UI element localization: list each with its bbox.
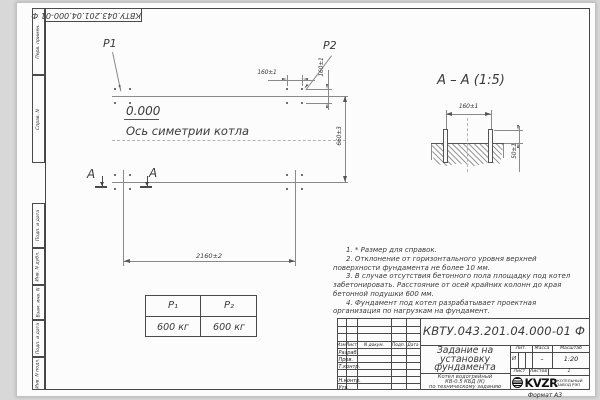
signature-row-utv: Утв.: [339, 385, 350, 391]
extension-line: [123, 170, 124, 266]
dimension-text-bolt-x: 160±1: [250, 69, 284, 76]
title-block-line: [391, 318, 392, 390]
kvzr-logo-caption: КОТЕЛЬНЫЙ ЗАВОД РЭП: [557, 379, 583, 388]
sheet-number-label: Лист: [510, 369, 529, 374]
bolt-dot: [286, 88, 288, 90]
frame-cell-label: Справ. N: [36, 108, 41, 129]
change-header-ndokum: N докум.: [357, 343, 391, 348]
section-view-title: А – А (1:5): [411, 73, 531, 88]
sheets-total-value: 1: [548, 369, 590, 374]
extension-line: [491, 110, 492, 129]
bolt-dot: [286, 102, 288, 104]
dimension-arrow: [343, 96, 347, 102]
corner-designation-box: КВТУ.043.201.04.000-01 Ф: [45, 8, 142, 22]
document-title-line: фундамента: [421, 364, 509, 373]
dimension-text-width: 660±3: [335, 121, 343, 151]
title-block-line: [337, 333, 420, 334]
note-2: 2. Отклонение от горизонтального уровня …: [333, 255, 585, 273]
bolt-dot: [129, 174, 131, 176]
note-1: 1. * Размер для справок.: [333, 246, 585, 255]
axis-line-top: [112, 96, 348, 97]
dimension-arrow: [289, 259, 295, 263]
title-block-line: [510, 352, 590, 353]
level-mark: 0.000: [126, 104, 160, 118]
signature-row-prov: Пров.: [339, 357, 354, 363]
symmetry-axis-label: Ось симетрии котла: [126, 124, 249, 138]
dimension-arrow: [326, 84, 328, 89]
change-header-podp: Подп.: [391, 343, 406, 348]
title-block-line: [406, 318, 407, 390]
signature-row-razrab: Разраб.: [339, 350, 359, 356]
signature-row-tkontr: Т.контр.: [339, 364, 361, 370]
anchor-bolt-right: [488, 129, 493, 163]
dimension-text-bolt-height: 50±1: [510, 138, 518, 164]
frame-cell-label: Инв. N подл.: [36, 358, 41, 388]
frame-cell-label: Инв. N дубл.: [36, 251, 41, 281]
change-header-izm: Изм.: [337, 343, 346, 348]
dimension-text-bolt-y: 160±1: [317, 52, 325, 82]
lit-header: Лит.: [510, 346, 532, 351]
product-name: Котел водогрейный КВ-0.5 КБД (К) по техн…: [421, 375, 509, 391]
title-block-line: [525, 352, 526, 368]
frame-cell-podp-data-2: Подп. и дата: [32, 320, 45, 357]
frame-cell-perv-primen: Перв. примен.: [32, 8, 45, 75]
frame-cell-sprav-n: Справ. N: [32, 75, 45, 163]
bolt-dot: [129, 88, 131, 90]
bolt-dot: [286, 174, 288, 176]
dimension-arrow: [517, 125, 519, 130]
dimension-arrow: [343, 176, 347, 182]
bolt-dot: [286, 188, 288, 190]
level-mark-underline: [124, 119, 159, 120]
dimension-arrow: [124, 259, 130, 263]
load-table-value-p1: 600 кг: [146, 322, 200, 333]
dimension-arrow: [446, 112, 452, 116]
concrete-right-edge: [503, 144, 504, 158]
dimension-line: [519, 126, 520, 172]
sheets-total-label: Листов: [529, 369, 548, 374]
dimension-arrow: [282, 78, 287, 80]
frame-cell-label: Подп. и дата: [36, 210, 41, 241]
bolt-dot: [114, 88, 116, 90]
section-view-arrow: [145, 182, 149, 186]
note-4: 4. Фундамент под котел разрабатывает про…: [333, 299, 585, 317]
scale-value: 1:20: [552, 355, 590, 363]
corner-designation-text: КВТУ.043.201.04.000-01 Ф: [46, 9, 141, 21]
bolt-dot: [301, 102, 303, 104]
bolt-dot: [301, 188, 303, 190]
mass-header: Масса: [532, 346, 552, 351]
dimension-text-bolt-spacing: 160±1: [446, 103, 491, 110]
dimension-text-length: 2160±2: [179, 252, 239, 260]
bolt-dot: [301, 174, 303, 176]
frame-cell-inv-podl: Инв. N подл.: [32, 357, 45, 390]
section-letter-left: A: [87, 167, 95, 181]
load-point-p2-label: P2: [323, 39, 337, 52]
load-table-header-p1: P₁: [146, 300, 200, 311]
kvzr-logo-caption-line: ЗАВОД РЭП: [557, 383, 583, 388]
frame-cell-vzam-inv: Взам. инв. N: [32, 285, 45, 320]
section-cut-stroke: [95, 186, 107, 188]
product-name-line: по техническому заданию: [421, 385, 509, 390]
format-label: Формат А3: [515, 392, 575, 399]
bolt-dot: [114, 102, 116, 104]
load-table-header-p2: P₂: [202, 300, 256, 311]
scale-header: Масштаб: [552, 346, 590, 351]
load-table-row-divider: [145, 316, 257, 317]
section-centerline: [467, 118, 468, 172]
drawing-page: { "sheet": { "doc_number": "КВТУ.043.201…: [0, 0, 600, 400]
technical-notes: 1. * Размер для справок. 2. Отклонение о…: [333, 246, 585, 316]
concrete-left-edge: [431, 144, 432, 160]
bolt-dot: [114, 174, 116, 176]
frame-cell-label: Подп. и дата: [36, 323, 41, 354]
symmetry-axis-line: [112, 140, 346, 141]
section-cut-stroke: [140, 186, 152, 188]
bolt-dot: [114, 188, 116, 190]
dimension-arrow: [303, 78, 308, 80]
kvzr-logo-text: KVZR: [525, 376, 558, 390]
kvzr-logo-emblem: [512, 377, 523, 388]
frame-cell-inv-dubl: Инв. N дубл.: [32, 248, 45, 285]
anchor-bolt-left: [443, 129, 448, 163]
bolt-dot: [129, 188, 131, 190]
dimension-arrow: [326, 103, 328, 108]
bolt-dot: [301, 88, 303, 90]
dimension-line: [345, 96, 346, 183]
mass-value: –: [532, 356, 552, 363]
extension-line: [295, 170, 296, 266]
lit-value: И: [510, 356, 518, 362]
frame-cell-podp-data-1: Подп. и дата: [32, 203, 45, 248]
frame-cell-label: Перв. примен.: [36, 24, 41, 59]
load-point-p1-label: P1: [103, 37, 117, 50]
section-letter-right: A: [149, 166, 157, 180]
dimension-line: [123, 261, 296, 262]
section-view-arrow: [100, 182, 104, 186]
note-3: 3. В случае отсутствия бетонного пола пл…: [333, 272, 585, 298]
change-header-data: Дата: [406, 343, 420, 348]
document-title: Задание на установку фундамента: [421, 347, 509, 373]
title-block-line: [337, 326, 420, 327]
change-header-list: Лист: [346, 343, 357, 348]
dimension-arrow: [485, 112, 491, 116]
load-table-value-p2: 600 кг: [202, 322, 256, 333]
signature-row-nkontr: Н.контр.: [339, 378, 361, 384]
title-block-designation: КВТУ.043.201.04.000-01 Ф: [421, 324, 587, 338]
frame-cell-label: Взам. инв. N: [36, 288, 41, 318]
